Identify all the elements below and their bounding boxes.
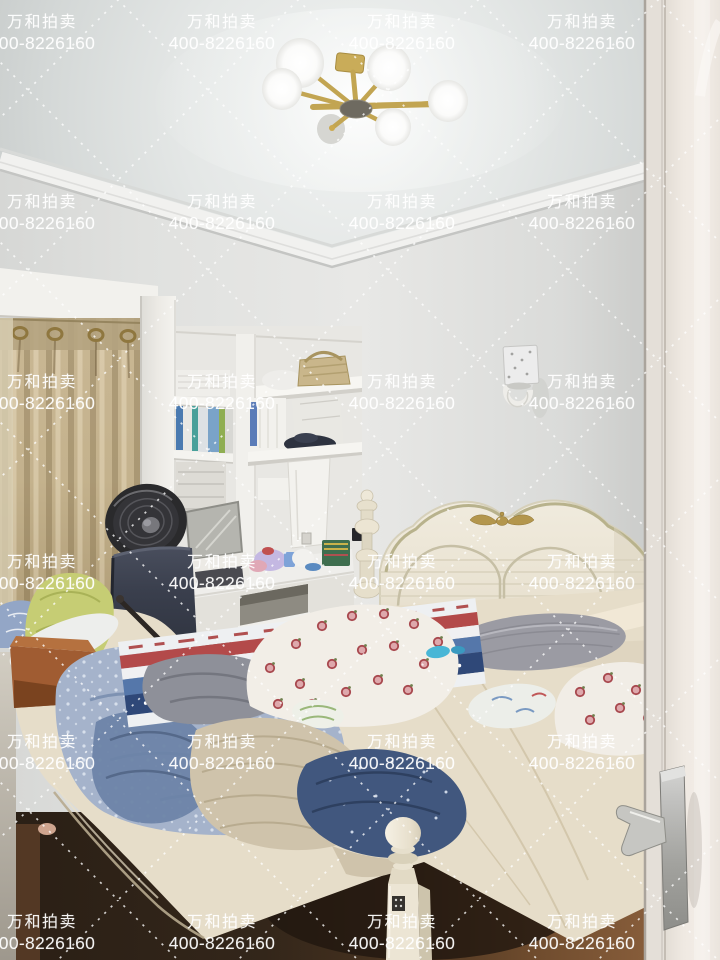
mirror-board [186,502,242,560]
wall-shelf-left [174,370,233,520]
light-switch [302,533,311,544]
scene-svg [0,0,720,960]
chandelier [155,8,565,192]
bedroom-photo: 万和拍卖400-8226160万和拍卖400-8226160万和拍卖400-82… [0,0,720,960]
